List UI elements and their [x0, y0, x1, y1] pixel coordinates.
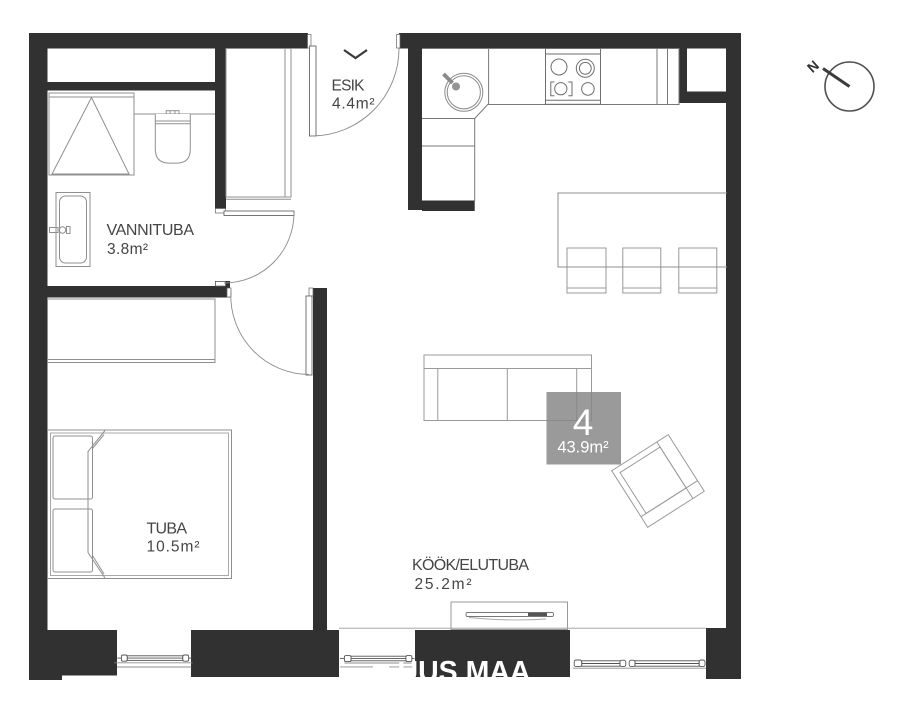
svg-text:25.2m²: 25.2m² — [415, 576, 472, 593]
svg-text:KÖÖK/ELUTUBA: KÖÖK/ELUTUBA — [412, 556, 529, 574]
svg-text:VANNITUBA: VANNITUBA — [107, 222, 195, 239]
svg-text:10.5m²: 10.5m² — [147, 539, 200, 556]
svg-text:4.4m²: 4.4m² — [332, 96, 375, 113]
svg-text:ESIK: ESIK — [332, 78, 366, 95]
svg-text:4: 4 — [573, 402, 594, 443]
svg-text:UUS MAA: UUS MAA — [398, 656, 531, 688]
svg-text:3.8m²: 3.8m² — [107, 241, 148, 258]
svg-text:TUBA: TUBA — [147, 521, 188, 538]
svg-text:43.9m²: 43.9m² — [557, 438, 609, 456]
